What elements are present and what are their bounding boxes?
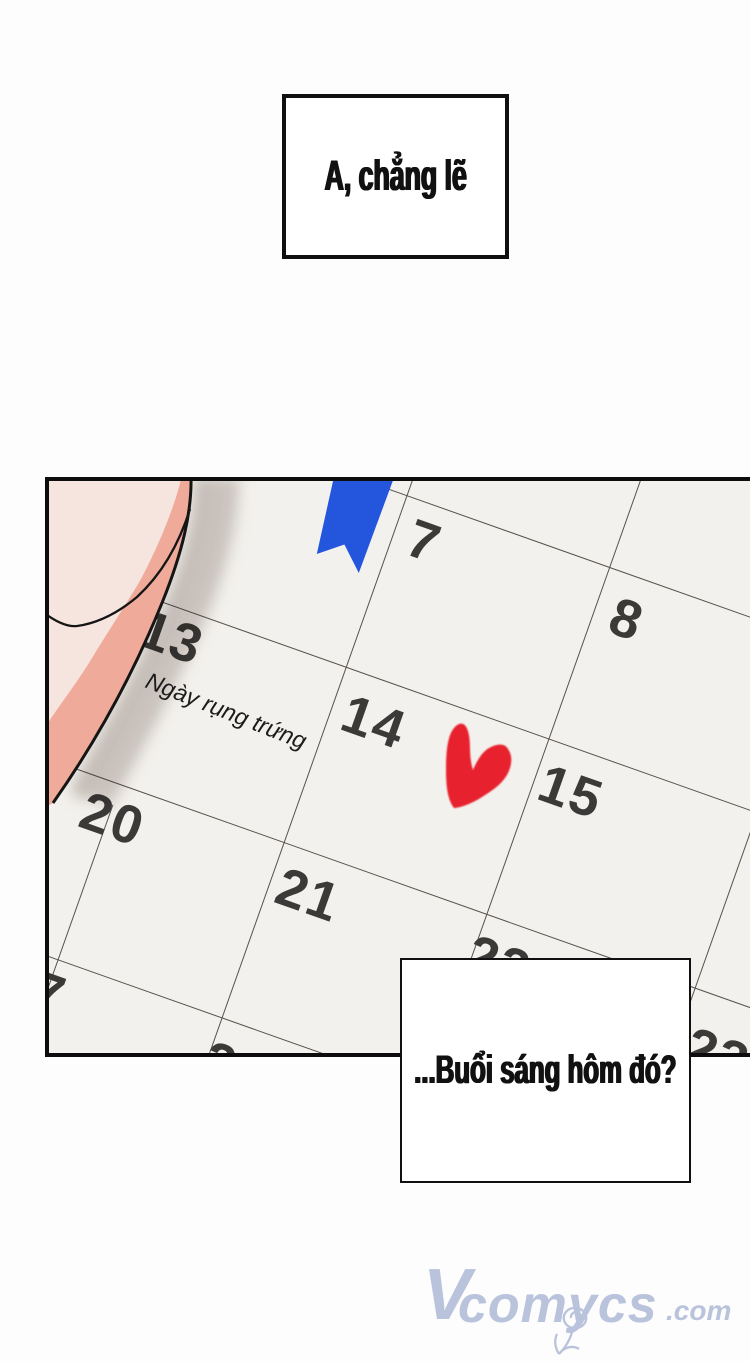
svg-text:Ngày rụng trứng: Ngày rụng trứng [142,667,310,754]
